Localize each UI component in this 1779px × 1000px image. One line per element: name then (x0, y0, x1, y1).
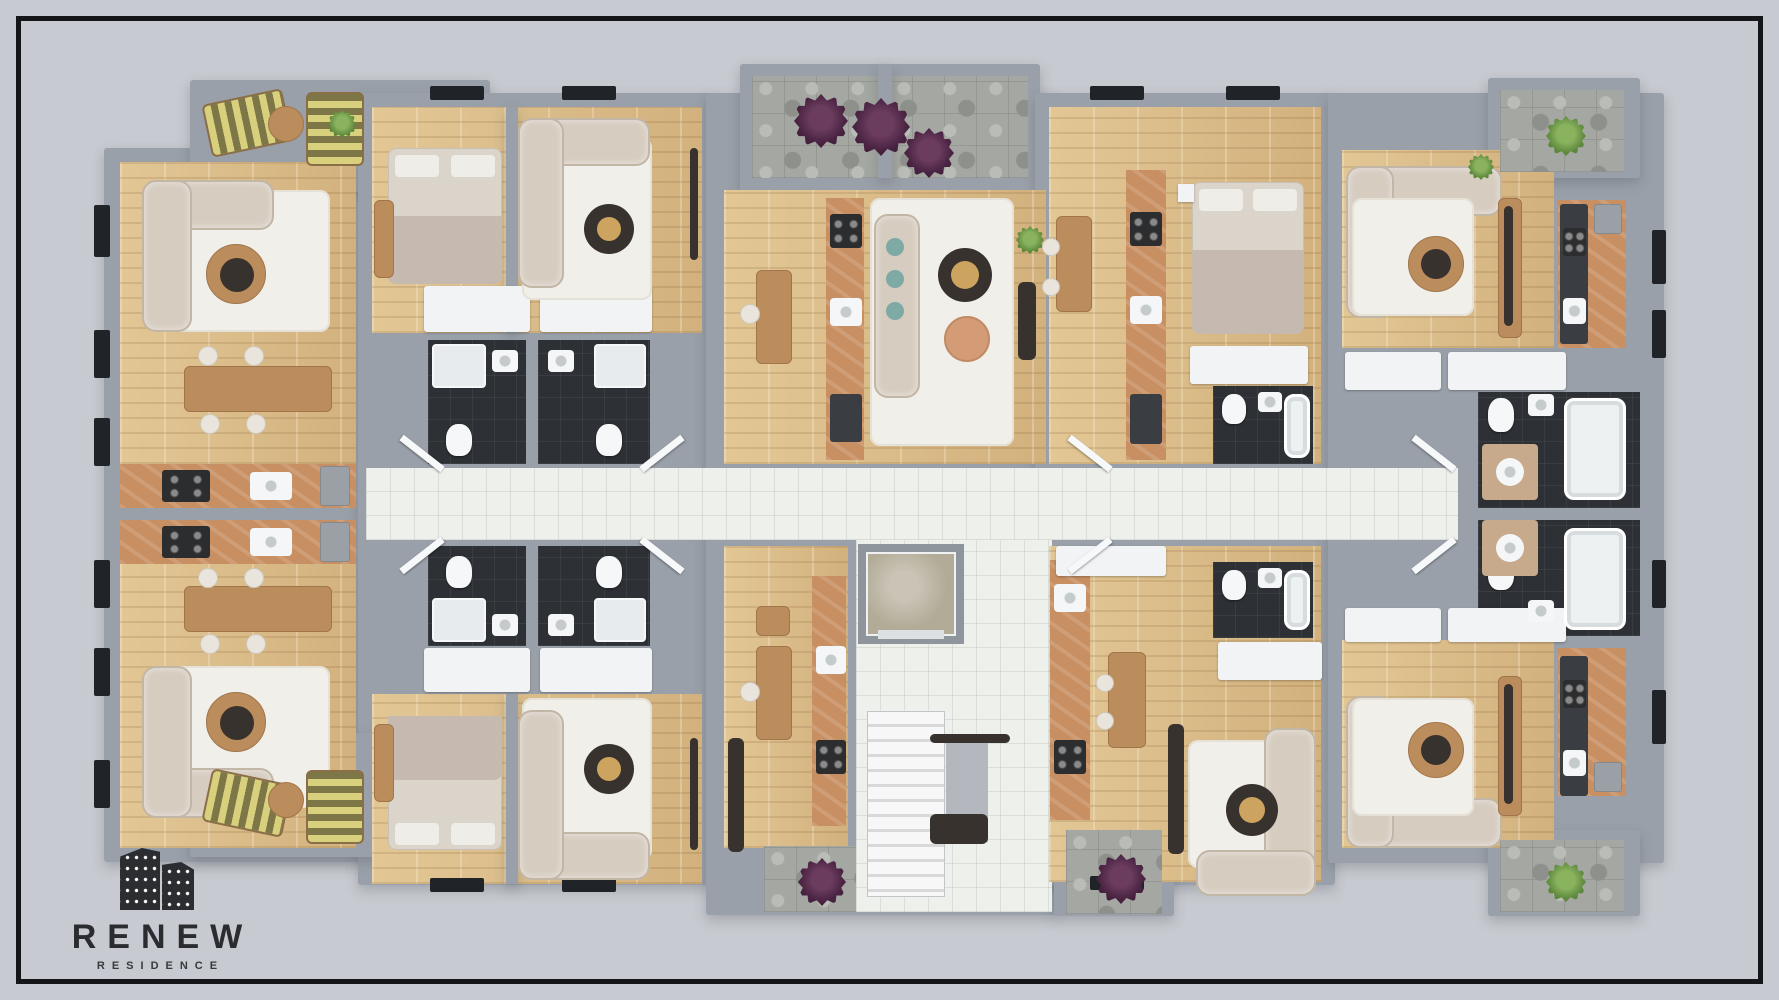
stove (1054, 740, 1086, 774)
pillow (394, 822, 440, 846)
shower (432, 344, 486, 388)
toilet (446, 424, 472, 456)
tv-console (728, 738, 744, 852)
logo-tower-left (120, 848, 160, 910)
dresser (374, 724, 394, 802)
tv-panel (690, 738, 698, 850)
chair (1096, 674, 1114, 692)
vanity-sink (1496, 534, 1524, 562)
sofa-section (142, 180, 192, 332)
bed-blanket (388, 216, 502, 284)
fridge (320, 466, 350, 506)
bathtub (1284, 394, 1310, 458)
tv-panel (1504, 206, 1513, 326)
pillow (394, 154, 440, 178)
toilet (596, 556, 622, 588)
wardrobe-center-right-top (1190, 346, 1308, 384)
chair (244, 346, 264, 366)
bath-sink (1258, 568, 1282, 588)
nightstand (1178, 184, 1194, 202)
bath-sink (1258, 392, 1282, 412)
bath-sink (1528, 394, 1554, 416)
fridge (1594, 762, 1622, 792)
logo: RENEW RESIDENCE (52, 846, 262, 972)
dining-table (184, 366, 332, 412)
balcony-table (268, 106, 304, 142)
stair-rail (930, 814, 988, 844)
stove (1563, 228, 1586, 256)
stove (1130, 212, 1162, 246)
chair (246, 634, 266, 654)
window-right-2 (1652, 310, 1666, 358)
toilet (1488, 398, 1514, 432)
chair (740, 682, 760, 702)
fridge (1594, 204, 1622, 234)
window-bottom-2 (562, 878, 616, 892)
floor-plan-screenshot: RENEW RESIDENCE (0, 0, 1779, 1000)
window-left-3 (94, 418, 110, 466)
window-top-4 (1226, 86, 1280, 100)
kitchen-sink (816, 646, 846, 674)
floor-plan (0, 0, 1779, 1000)
lounge-chair (944, 316, 990, 362)
window-left-1 (94, 205, 110, 257)
toilet (1222, 394, 1246, 424)
side-table-tray (597, 757, 621, 781)
cushion (886, 238, 904, 256)
kitchen-sink (250, 528, 292, 556)
pillow (450, 154, 496, 178)
cushion (886, 270, 904, 288)
chair (200, 414, 220, 434)
pillow (1198, 188, 1244, 212)
bathtub (1564, 398, 1626, 500)
bed-blanket (388, 716, 502, 780)
kitchen-sink (250, 472, 292, 500)
window-right-4 (1652, 690, 1666, 744)
wardrobe-b-bottom (540, 648, 652, 692)
toilet (446, 556, 472, 588)
wardrobe-right-bottom-1 (1345, 608, 1441, 642)
kitchen-sink (1130, 296, 1162, 324)
window-bottom-1 (430, 878, 484, 892)
elevator-door (878, 630, 944, 639)
window-left-2 (94, 330, 110, 378)
pillow (1252, 188, 1298, 212)
bath-sink (492, 350, 518, 372)
coffee-tray (951, 261, 979, 289)
desk (756, 646, 792, 740)
stove (1563, 680, 1586, 708)
sofa-section (518, 118, 564, 288)
kitchen-sink (1563, 750, 1586, 776)
bathtub (1284, 570, 1310, 630)
coffee-tray (1421, 249, 1451, 279)
logo-building-icon (114, 846, 200, 910)
balcony-table (268, 782, 304, 818)
logo-title: RENEW (52, 918, 262, 957)
bath-sink (1528, 600, 1554, 622)
elevator-cab (866, 552, 956, 636)
stove (162, 470, 210, 502)
sofa-section (518, 710, 564, 880)
pillow (450, 822, 496, 846)
side-table (756, 606, 790, 636)
shelf (1018, 282, 1036, 360)
logo-subtitle: RESIDENCE (52, 960, 262, 972)
logo-tower-right (162, 862, 194, 910)
toilet (1222, 570, 1246, 600)
chair (200, 634, 220, 654)
bath-sink (492, 614, 518, 636)
bathtub (1564, 528, 1626, 630)
coffee-tray (1239, 797, 1265, 823)
coffee-tray (1421, 735, 1451, 765)
chair (198, 568, 218, 588)
fridge (320, 522, 350, 562)
dining-table (184, 586, 332, 632)
counter (830, 394, 862, 442)
chair (244, 568, 264, 588)
cushion (886, 302, 904, 320)
wardrobe-right-top-2 (1448, 352, 1566, 390)
kitchen-sink (830, 298, 862, 326)
sofa-section (142, 666, 192, 818)
dresser (374, 200, 394, 278)
floor-galley-bottom-center (812, 576, 846, 826)
chair (246, 414, 266, 434)
chair (1096, 712, 1114, 730)
stair-rail (930, 734, 1010, 743)
bed-blanket (1192, 250, 1304, 334)
tv-console (1168, 724, 1184, 854)
window-left-5 (94, 648, 110, 696)
vanity-sink (1496, 458, 1524, 486)
shower (594, 598, 646, 642)
bath-sink (548, 614, 574, 636)
chair (1042, 238, 1060, 256)
wardrobe-center-right-bottom (1218, 642, 1322, 680)
kitchen-sink (1054, 584, 1086, 612)
window-top-2 (562, 86, 616, 100)
window-top-1 (430, 86, 484, 100)
shower (432, 598, 486, 642)
partition-bedrooms-bottom (506, 694, 518, 884)
desk (756, 270, 792, 364)
dining-table (1108, 652, 1146, 748)
window-right-3 (1652, 560, 1666, 608)
dining-table (1056, 216, 1092, 312)
chair (1042, 278, 1060, 296)
coffee-tray (220, 706, 254, 740)
floor-corridor (366, 468, 1458, 540)
side-table-tray (597, 217, 621, 241)
window-left-4 (94, 560, 110, 608)
coffee-tray (220, 258, 254, 292)
toilet (596, 424, 622, 456)
chair (740, 304, 760, 324)
chair (198, 346, 218, 366)
kitchen-sink (1563, 298, 1586, 324)
wardrobe-right-top-1 (1345, 352, 1441, 390)
tv-panel (690, 148, 698, 260)
window-left-6 (94, 760, 110, 808)
window-right-1 (1652, 230, 1666, 284)
stove (830, 214, 862, 248)
counter (1130, 394, 1162, 444)
tv-panel (1504, 684, 1513, 804)
sofa-section (1196, 850, 1316, 896)
wardrobe-a-bottom (424, 648, 530, 692)
bath-sink (548, 350, 574, 372)
wardrobe-a-top (424, 286, 530, 332)
stove (816, 740, 846, 774)
sun-lounger (306, 770, 364, 844)
shower (594, 344, 646, 388)
stove (162, 526, 210, 558)
window-top-3 (1090, 86, 1144, 100)
